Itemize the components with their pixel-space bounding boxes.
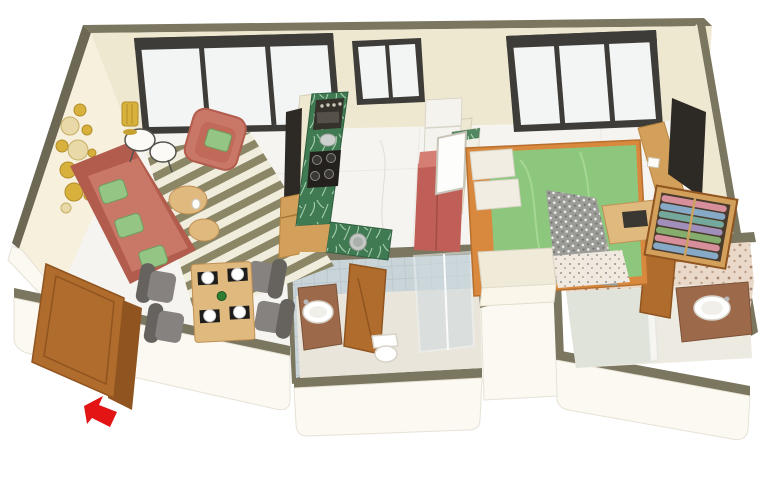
kitchen-sink (320, 134, 336, 146)
green-bottle (217, 291, 226, 300)
bedroom-window (506, 30, 663, 132)
pillow (470, 149, 515, 180)
floor-plan-render (0, 0, 780, 490)
bathroom1-shower-enclosure (414, 252, 474, 352)
plate (203, 309, 216, 322)
plate (231, 268, 244, 281)
bathroom2-washbasin-bowl (701, 301, 723, 315)
pillow (474, 179, 521, 210)
kitchen-cabinet-base (293, 224, 330, 252)
console-item (647, 157, 659, 167)
bathroom1-faucet (304, 300, 309, 305)
vase (192, 199, 200, 209)
plate (233, 306, 246, 319)
bathroom1-front-wall-face (294, 378, 482, 436)
floor-plan-stage (0, 0, 780, 490)
bathroom2-shower-floor (566, 288, 652, 368)
laptop (622, 210, 648, 228)
bathroom1-washbasin-bowl (309, 306, 327, 318)
sink-pot (350, 234, 367, 251)
plate (201, 271, 214, 284)
cream-wardrobe (478, 248, 556, 306)
entrance-arrow (84, 396, 117, 427)
living-tv (284, 108, 302, 200)
gas-hob (307, 150, 341, 188)
bathroom2-faucet (725, 297, 730, 302)
dining-table (191, 261, 255, 342)
bedroom-rug (552, 250, 630, 288)
open-wardrobe (645, 186, 738, 269)
kitchen-window (352, 38, 425, 105)
grill-appliance (313, 98, 344, 130)
toilet (375, 346, 397, 362)
dressing-mirror (436, 132, 466, 194)
